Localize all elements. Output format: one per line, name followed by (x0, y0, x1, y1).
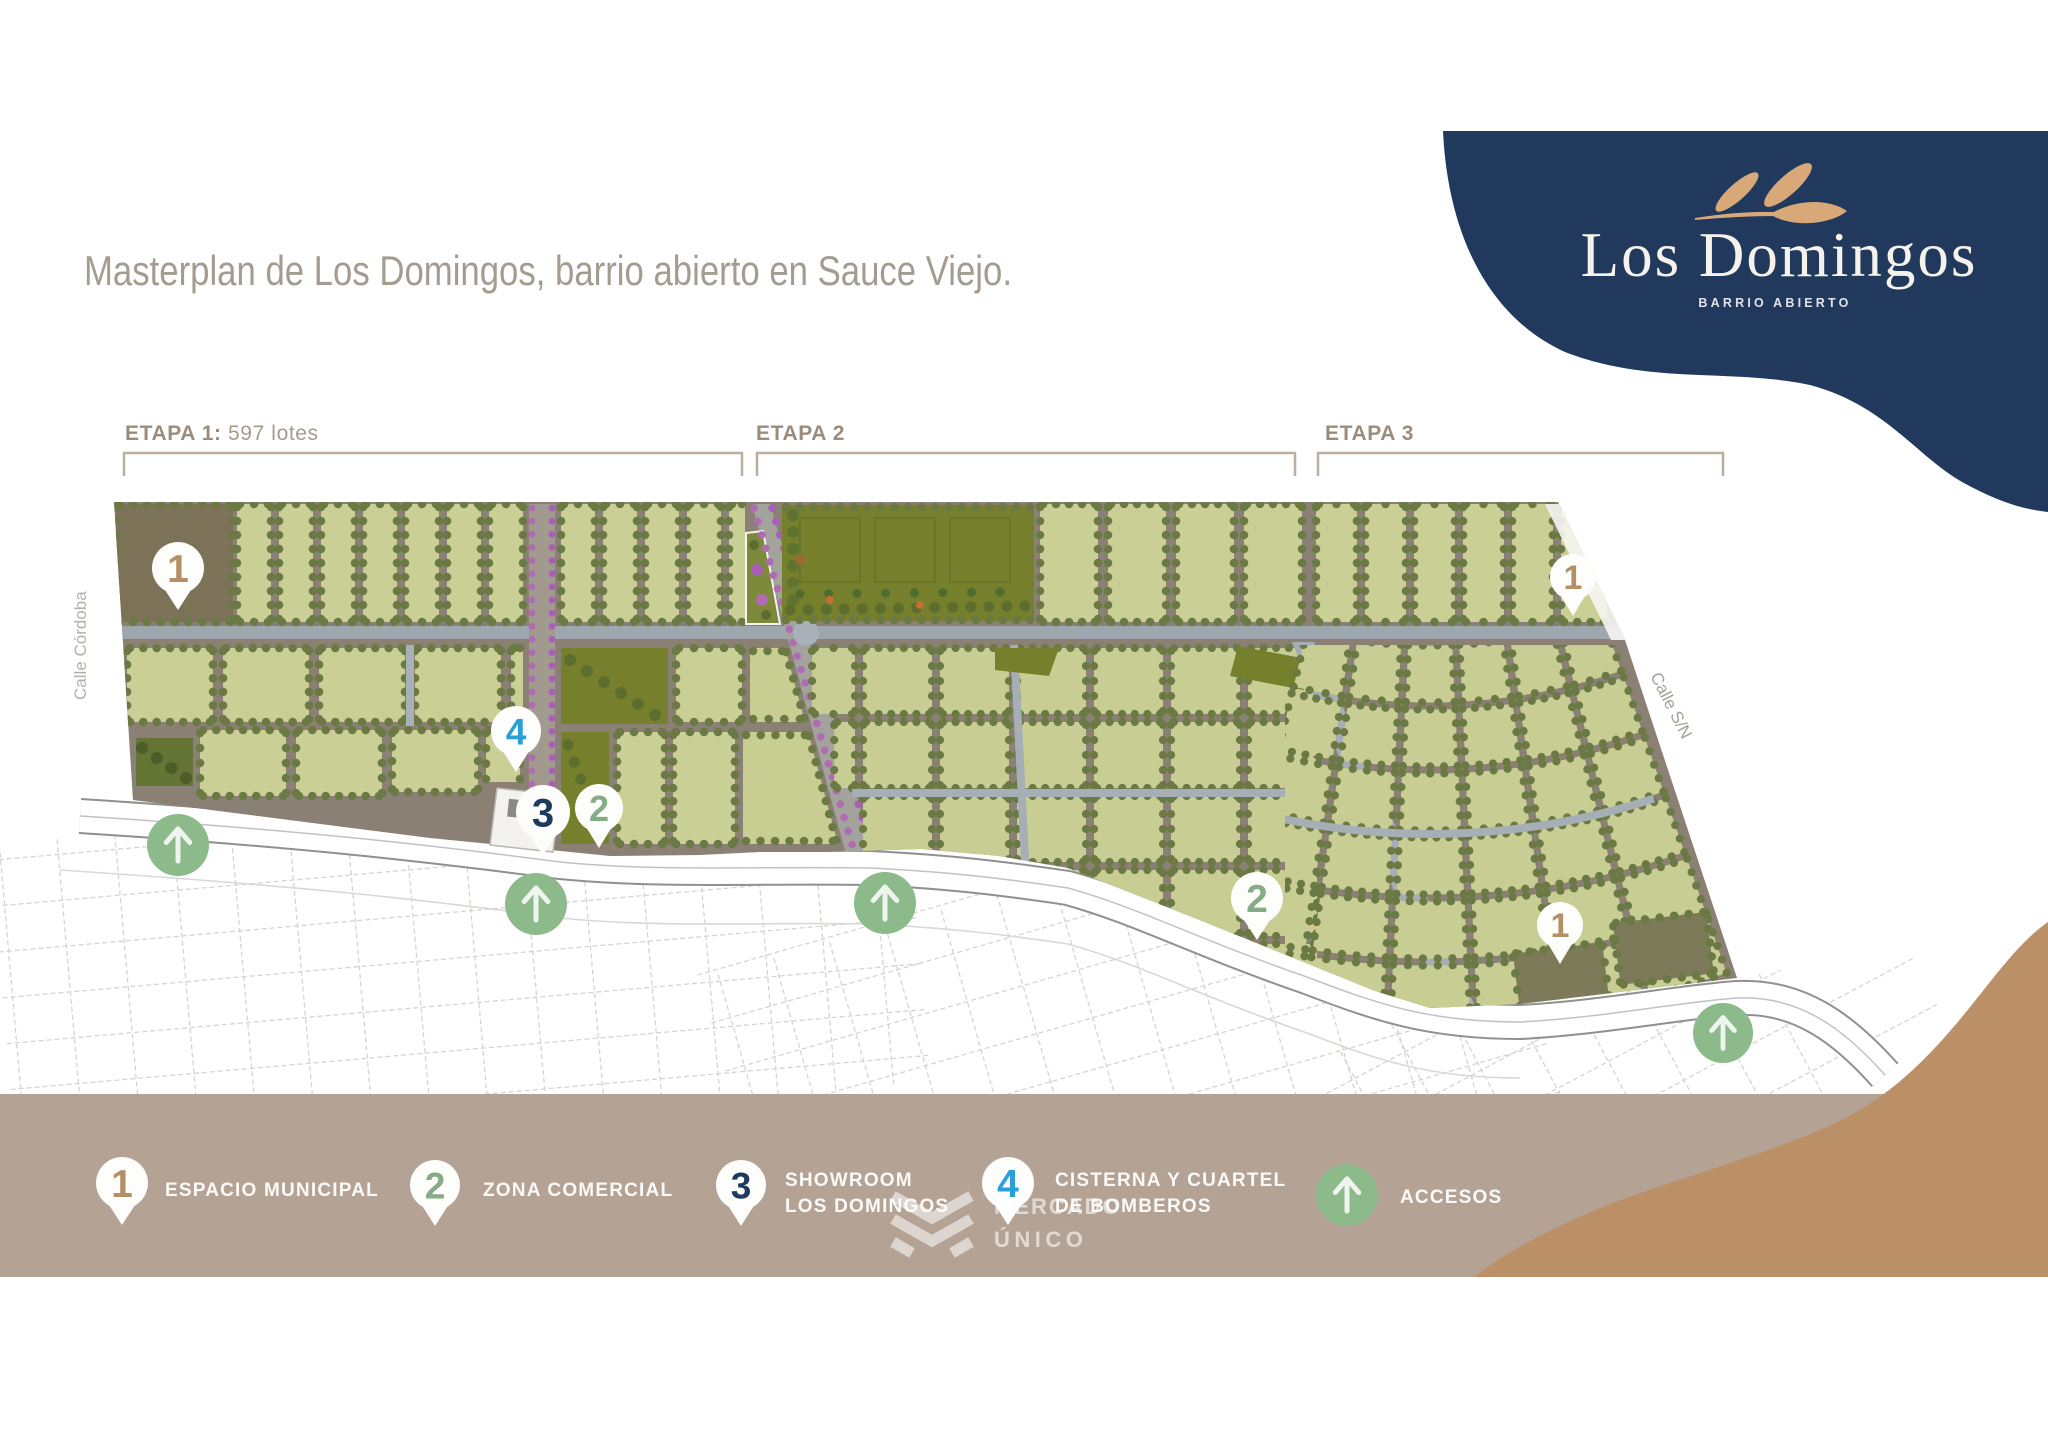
svg-text:2: 2 (425, 1165, 446, 1206)
svg-text:ESPACIO MUNICIPAL: ESPACIO MUNICIPAL (165, 1180, 379, 1201)
svg-text:1: 1 (167, 548, 189, 591)
svg-text:1: 1 (111, 1163, 133, 1206)
svg-text:MERCADO: MERCADO (994, 1194, 1122, 1219)
svg-text:CISTERNA Y CUARTEL: CISTERNA Y CUARTEL (1055, 1170, 1286, 1191)
svg-text:Los Domingos: Los Domingos (1581, 220, 1978, 290)
svg-text:ETAPA 2: ETAPA 2 (756, 422, 845, 445)
svg-text:BARRIO ABIERTO: BARRIO ABIERTO (1698, 296, 1851, 310)
svg-text:SHOWROOM: SHOWROOM (785, 1170, 913, 1191)
svg-text:ETAPA 3: ETAPA 3 (1325, 422, 1414, 445)
svg-text:2: 2 (589, 788, 609, 829)
svg-text:4: 4 (506, 711, 527, 752)
svg-text:Masterplan de Los Domingos, ba: Masterplan de Los Domingos, barrio abier… (84, 247, 1012, 294)
svg-text:1: 1 (1551, 907, 1570, 945)
svg-text:ACCESOS: ACCESOS (1400, 1187, 1502, 1208)
svg-text:ETAPA 1: 597 lotes: ETAPA 1: 597 lotes (125, 422, 319, 445)
svg-text:3: 3 (532, 791, 554, 835)
svg-text:1: 1 (1564, 559, 1583, 597)
svg-text:Calle Córdoba: Calle Córdoba (71, 591, 90, 700)
svg-text:2: 2 (1246, 878, 1268, 921)
svg-text:ÚNICO: ÚNICO (994, 1227, 1087, 1252)
svg-text:ZONA COMERCIAL: ZONA COMERCIAL (483, 1180, 673, 1201)
svg-text:3: 3 (731, 1165, 752, 1206)
